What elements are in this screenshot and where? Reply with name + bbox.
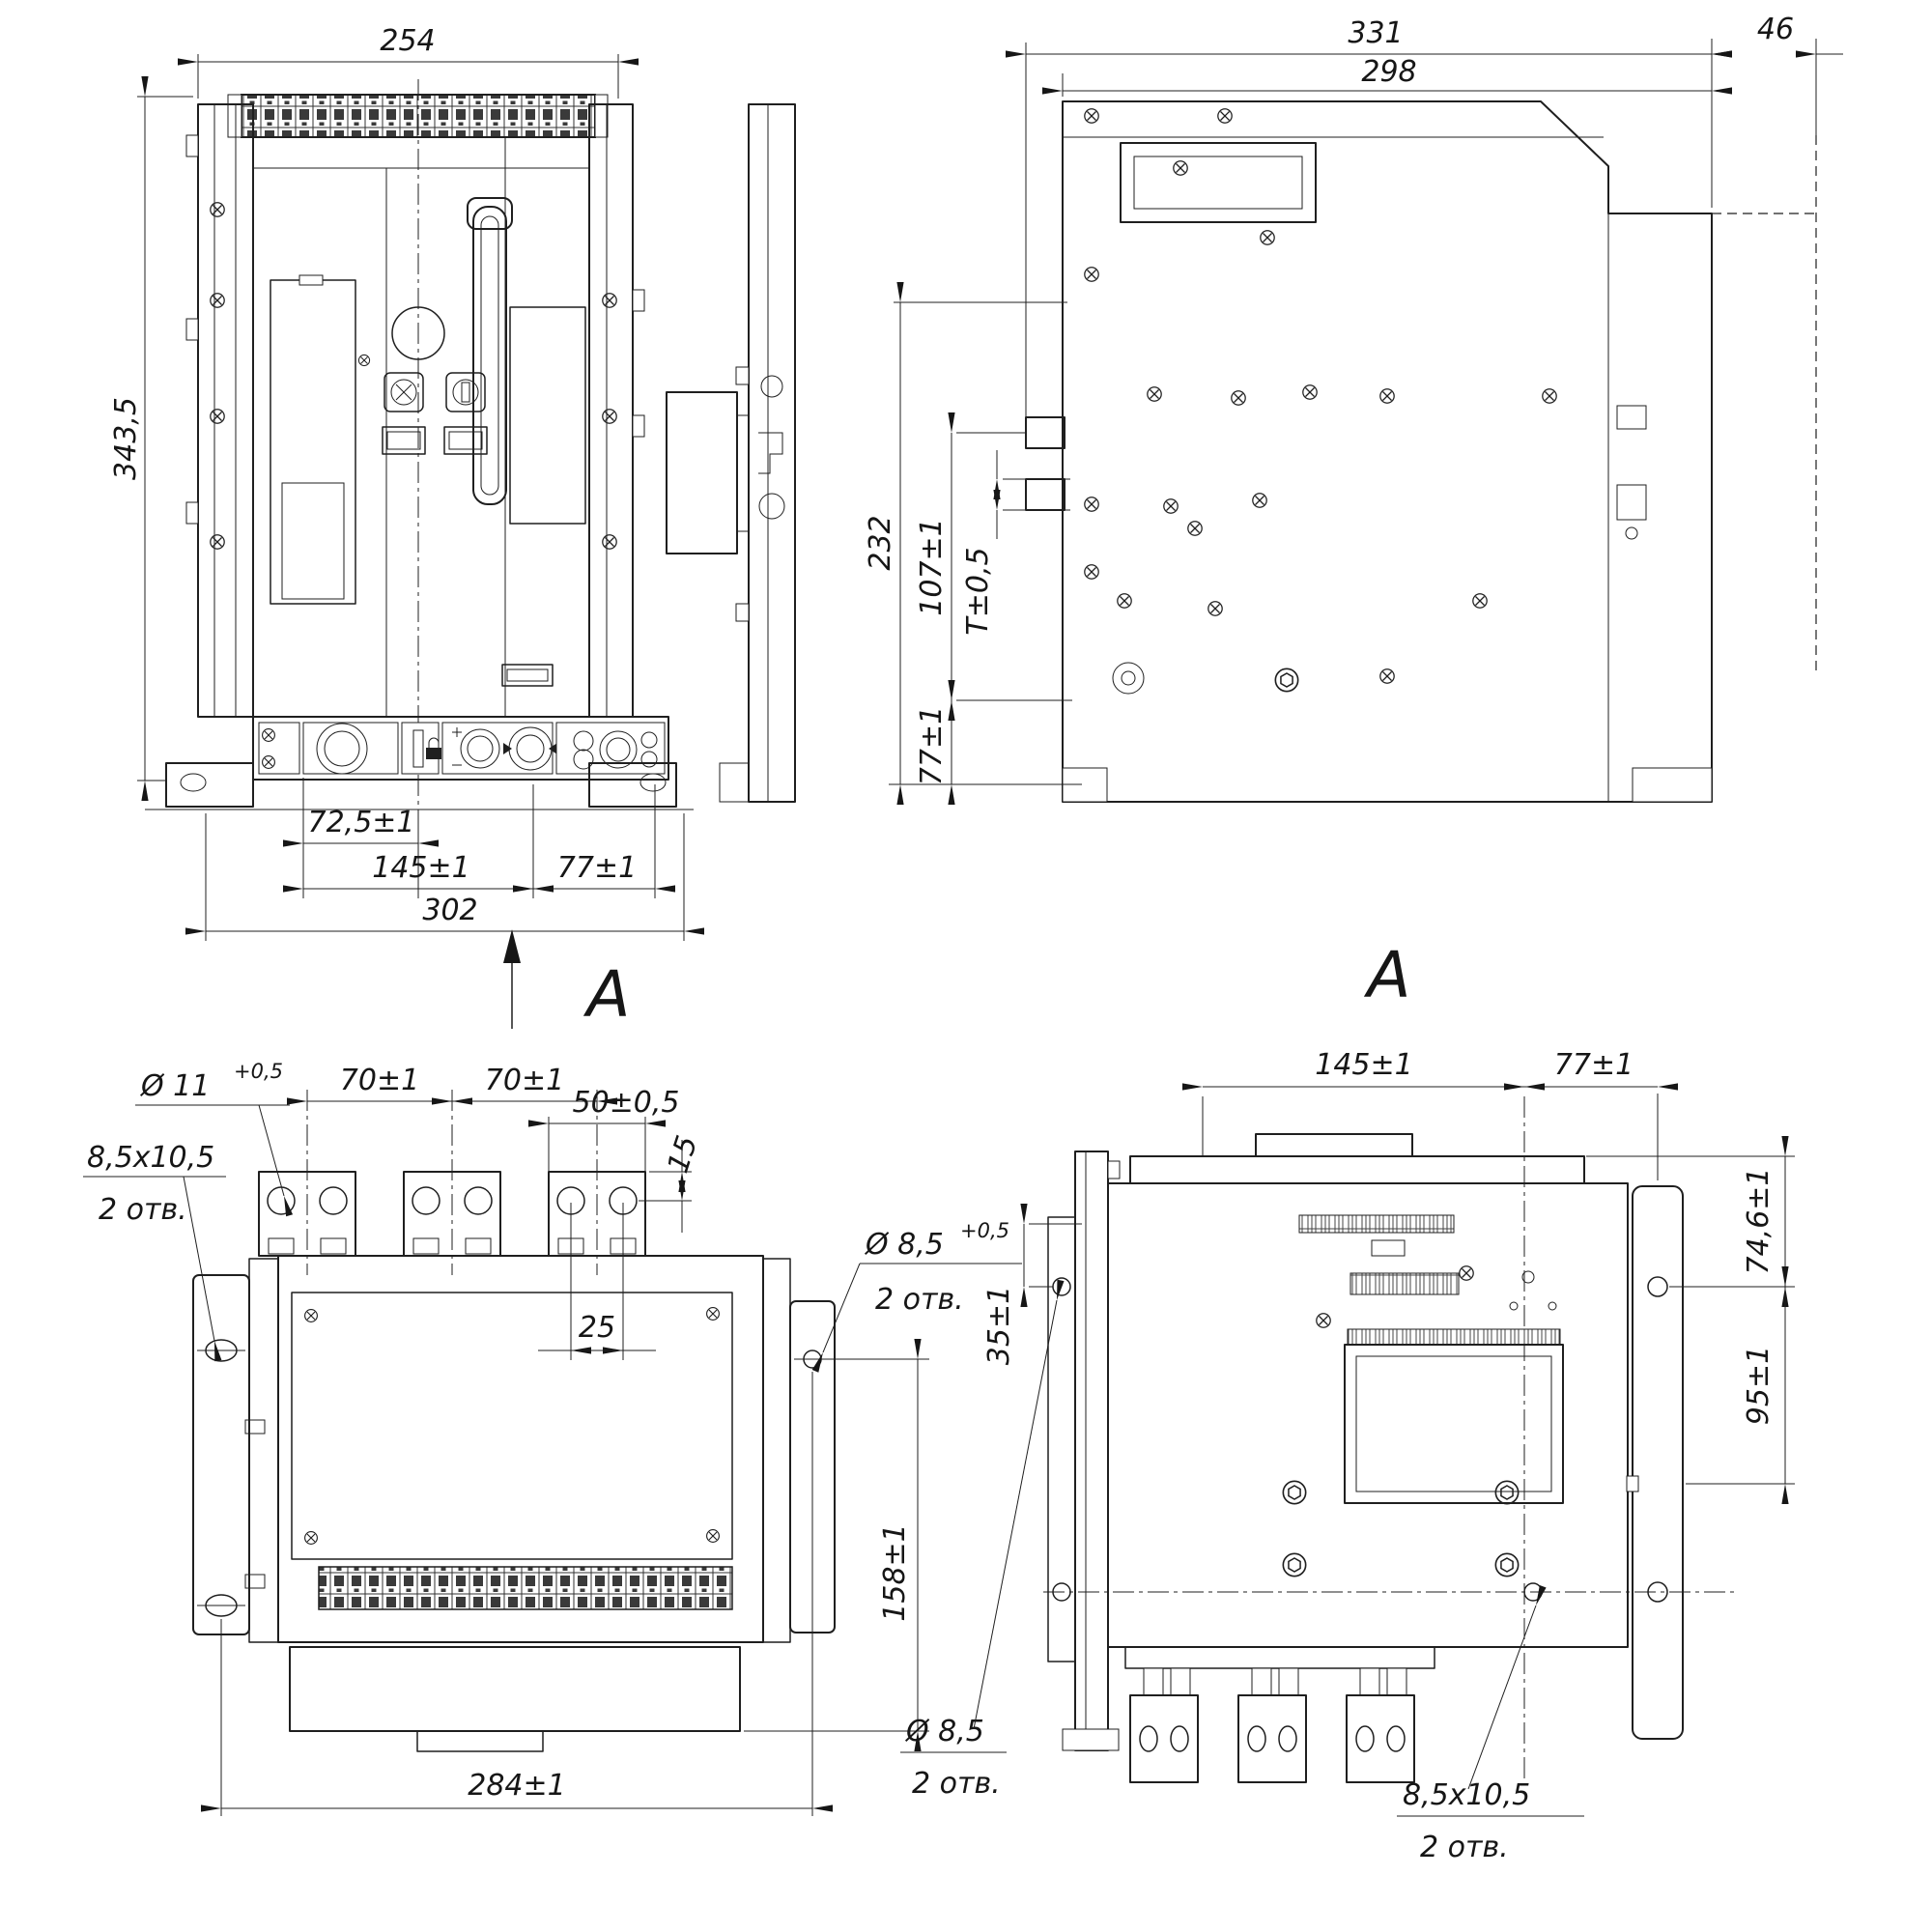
drive-shaft — [1026, 479, 1065, 510]
rear-lugs — [1125, 1647, 1435, 1782]
screw-icon — [305, 1310, 318, 1322]
screw-icon — [1085, 109, 1098, 123]
screw-icon — [1232, 391, 1245, 405]
bolt-icon — [1283, 1481, 1305, 1503]
dim-107-label: 107±1 — [915, 518, 949, 615]
dim-331-label: 331 — [1348, 16, 1403, 50]
front-view: 254 343,5 72,5±1 145±1 77±1 302 A — [109, 24, 694, 1032]
screw-icon — [603, 535, 616, 549]
handle-slot — [473, 207, 506, 504]
screw-icon — [603, 410, 616, 423]
screw-icon — [1543, 389, 1556, 403]
upper-plate — [1130, 1156, 1584, 1183]
top-plate — [1256, 1134, 1412, 1156]
rear-hole-label: Ø 8,5 — [904, 1715, 984, 1748]
dim-70b-label: 70±1 — [485, 1064, 564, 1097]
side-view: 331 298 46 232 107±1 T±0,5 77±1 — [667, 13, 1843, 802]
rear-rail — [749, 104, 795, 802]
rear-terminal-block — [667, 392, 737, 554]
dim-70a-label: 70±1 — [340, 1064, 419, 1097]
vent-strip — [1348, 1329, 1560, 1345]
bolt-icon — [1283, 1553, 1305, 1576]
terminal-strip-endcap — [228, 95, 241, 137]
side-panel — [270, 280, 355, 604]
dim-158-label: 158±1 — [878, 1523, 912, 1621]
base-tab — [417, 1731, 543, 1751]
label-window — [502, 665, 553, 686]
screw-icon — [1085, 268, 1098, 281]
section-arrow — [503, 929, 521, 1029]
front-dimensions: 254 343,5 72,5±1 145±1 77±1 302 A — [109, 24, 684, 1032]
screw-icon — [305, 1532, 318, 1545]
rear-window — [1345, 1345, 1563, 1503]
vent-strip — [1350, 1273, 1459, 1294]
flange-hole-label: Ø 8,5 — [864, 1228, 944, 1262]
screw-icon — [1118, 594, 1131, 608]
screw-icon — [1303, 385, 1317, 399]
screw-icon — [1148, 387, 1161, 401]
screw-icon — [1218, 109, 1232, 123]
screw-icon — [1188, 522, 1202, 535]
screw-icon — [1174, 161, 1187, 175]
bolt-icon — [1275, 668, 1297, 691]
screw-icon — [707, 1308, 720, 1321]
dim-46-label: 46 — [1757, 13, 1794, 46]
dim-72-label: 72,5±1 — [307, 806, 414, 839]
terminal-strip — [319, 1567, 732, 1609]
dim-95-label: 95±1 — [1742, 1346, 1776, 1425]
top-view: 70±1 70±1 Ø 11 +0,5 50±0,5 15 25 8,5x10,… — [83, 1060, 1022, 1816]
screw-icon — [1164, 499, 1178, 513]
screw-icon — [1208, 602, 1222, 615]
dim-15-label: 15 — [661, 1131, 704, 1177]
screw-icon — [1473, 594, 1487, 608]
dim-145r-label: 145±1 — [1315, 1048, 1412, 1082]
flange-hole-qty: 2 отв. — [875, 1283, 964, 1317]
dim-284-label: 284±1 — [468, 1769, 565, 1803]
dim-254-label: 254 — [380, 24, 435, 58]
left-bracket — [198, 104, 253, 717]
dim-77-label: 77±1 — [557, 851, 637, 885]
right-mounting-flange — [1633, 1186, 1683, 1739]
screw-icon — [1380, 669, 1394, 683]
rear-slot-qty: 2 отв. — [1420, 1831, 1509, 1864]
section-letter: A — [582, 957, 630, 1032]
screw-icon — [211, 294, 224, 307]
mounting-foot — [166, 763, 253, 807]
rear-body — [1108, 1183, 1628, 1647]
terminal-strip-endcap — [595, 95, 608, 137]
screw-icon — [211, 410, 224, 423]
left-bracket — [1075, 1151, 1108, 1750]
slot-qty-label: 2 отв. — [99, 1193, 187, 1227]
flange-hole-tol: +0,5 — [960, 1219, 1009, 1242]
dim-35-label: 35±1 — [982, 1286, 1016, 1365]
side-body — [1063, 101, 1712, 802]
dim-77r-label: 77±1 — [1554, 1048, 1634, 1082]
screw-icon — [1261, 231, 1274, 244]
base-plate — [290, 1647, 740, 1731]
dim-t-label: T±0,5 — [961, 547, 995, 635]
screw-icon — [1380, 389, 1394, 403]
screw-icon — [603, 294, 616, 307]
left-mounting-flange — [193, 1275, 249, 1634]
dim-343-label: 343,5 — [109, 397, 143, 480]
screw-icon — [211, 535, 224, 549]
rating-plate — [510, 307, 585, 524]
drive-shaft — [1026, 417, 1065, 448]
rear-hole-qty: 2 отв. — [912, 1767, 1001, 1801]
screw-icon — [1085, 497, 1098, 511]
top-dimensions: 70±1 70±1 Ø 11 +0,5 50±0,5 15 25 8,5x10,… — [83, 1060, 1022, 1816]
drawing-sheet: 254 343,5 72,5±1 145±1 77±1 302 A — [0, 0, 1932, 1932]
top-cover — [292, 1293, 732, 1559]
dim-145-label: 145±1 — [372, 851, 469, 885]
screw-icon — [1317, 1314, 1330, 1327]
dim-746-label: 74,6±1 — [1742, 1167, 1776, 1274]
control-button — [446, 373, 485, 412]
flange-hole — [1648, 1277, 1667, 1296]
screw-icon — [1253, 494, 1266, 507]
engineering-drawing: 254 343,5 72,5±1 145±1 77±1 302 A — [0, 0, 1932, 1932]
rear-view: A — [900, 938, 1795, 1864]
bolt-icon — [1495, 1481, 1518, 1503]
right-bracket — [589, 104, 633, 717]
dim-77s-label: 77±1 — [915, 706, 949, 785]
bolt-icon — [1495, 1553, 1518, 1576]
screw-icon — [707, 1530, 720, 1543]
vent-strip — [1299, 1215, 1454, 1233]
screw-icon — [1085, 565, 1098, 579]
hole-dia-label: Ø 11 — [139, 1069, 210, 1103]
display-window — [1121, 143, 1316, 222]
dim-298-label: 298 — [1361, 55, 1416, 89]
indicator-window — [444, 427, 487, 454]
rear-slot-label: 8,5x10,5 — [1403, 1778, 1530, 1812]
screw-icon — [358, 355, 369, 365]
mounting-hole — [1053, 1278, 1070, 1295]
view-a-label: A — [1363, 938, 1410, 1012]
screw-icon — [211, 203, 224, 216]
screw-icon — [1460, 1266, 1473, 1280]
dim-50-label: 50±0,5 — [572, 1086, 679, 1120]
dim-232-label: 232 — [864, 515, 897, 570]
dim-25-label: 25 — [579, 1311, 615, 1345]
slot-size-label: 8,5x10,5 — [87, 1141, 214, 1175]
dim-302-label: 302 — [422, 894, 477, 927]
hole-dia-tol: +0,5 — [234, 1060, 283, 1083]
side-dimensions: 331 298 46 232 107±1 T±0,5 77±1 — [864, 13, 1843, 785]
left-flange-plate — [1048, 1217, 1075, 1662]
